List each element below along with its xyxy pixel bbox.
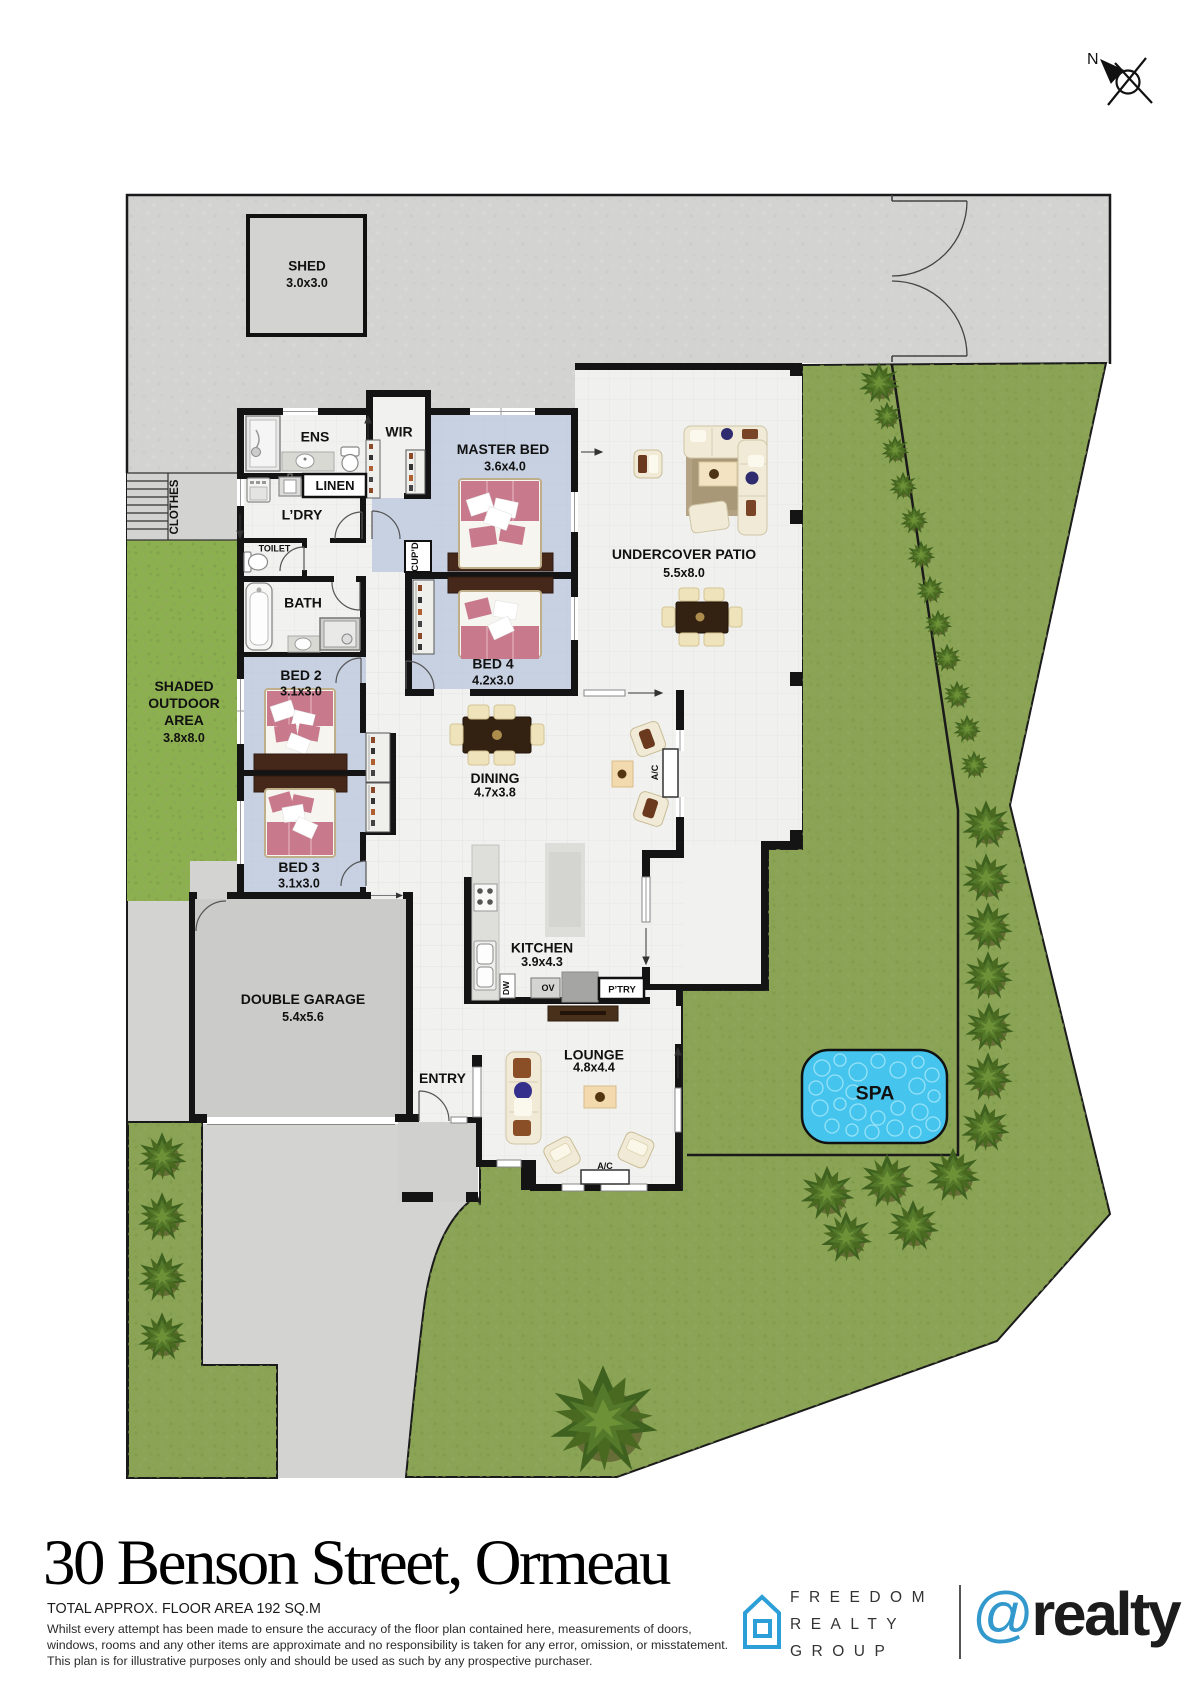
svg-text:3.1x3.0: 3.1x3.0 — [280, 685, 322, 699]
svg-text:KITCHEN: KITCHEN — [511, 940, 573, 956]
svg-text:5.4x5.6: 5.4x5.6 — [282, 1010, 324, 1024]
svg-text:ENTRY: ENTRY — [419, 1070, 467, 1086]
svg-text:BED 3: BED 3 — [278, 859, 319, 875]
svg-text:DOUBLE GARAGE: DOUBLE GARAGE — [241, 991, 365, 1007]
svg-text:5.5x8.0: 5.5x8.0 — [663, 566, 705, 580]
svg-text:MASTER BED: MASTER BED — [457, 441, 550, 457]
svg-text:N: N — [1087, 51, 1099, 68]
svg-text:DINING: DINING — [471, 770, 520, 786]
svg-text:SHADED: SHADED — [154, 678, 213, 694]
svg-text:WIR: WIR — [385, 424, 412, 440]
svg-text:OUTDOOR: OUTDOOR — [148, 695, 220, 711]
svg-text:DW: DW — [501, 980, 511, 995]
svg-text:3.0x3.0: 3.0x3.0 — [286, 276, 328, 290]
svg-text:L’DRY: L’DRY — [282, 507, 323, 523]
svg-text:3.6x4.0: 3.6x4.0 — [484, 460, 526, 474]
svg-text:A/C: A/C — [597, 1161, 613, 1171]
svg-text:SHED: SHED — [288, 259, 326, 274]
svg-text:4.8x4.4: 4.8x4.4 — [573, 1061, 615, 1075]
svg-text:4.7x3.8: 4.7x3.8 — [474, 786, 516, 800]
svg-text:P’TRY: P’TRY — [608, 985, 636, 996]
svg-text:CUP’D: CUP’D — [410, 542, 421, 572]
svg-text:3.1x3.0: 3.1x3.0 — [278, 877, 320, 891]
svg-text:4.2x3.0: 4.2x3.0 — [472, 674, 514, 688]
svg-text:CLOTHES: CLOTHES — [169, 479, 181, 534]
svg-text:SPA: SPA — [856, 1083, 895, 1105]
svg-text:A/C: A/C — [650, 764, 660, 780]
svg-text:UNDERCOVER PATIO: UNDERCOVER PATIO — [612, 546, 756, 562]
svg-text:OV: OV — [541, 983, 554, 993]
svg-text:BATH: BATH — [284, 595, 322, 611]
svg-text:TOILET: TOILET — [259, 544, 291, 554]
svg-text:LINEN: LINEN — [316, 478, 355, 493]
svg-text:ENS: ENS — [301, 429, 330, 445]
svg-text:BED 2: BED 2 — [280, 667, 321, 683]
svg-text:AREA: AREA — [164, 712, 204, 728]
svg-text:3.8x8.0: 3.8x8.0 — [163, 731, 205, 745]
svg-text:3.9x4.3: 3.9x4.3 — [521, 955, 563, 969]
svg-text:BED 4: BED 4 — [472, 656, 513, 672]
